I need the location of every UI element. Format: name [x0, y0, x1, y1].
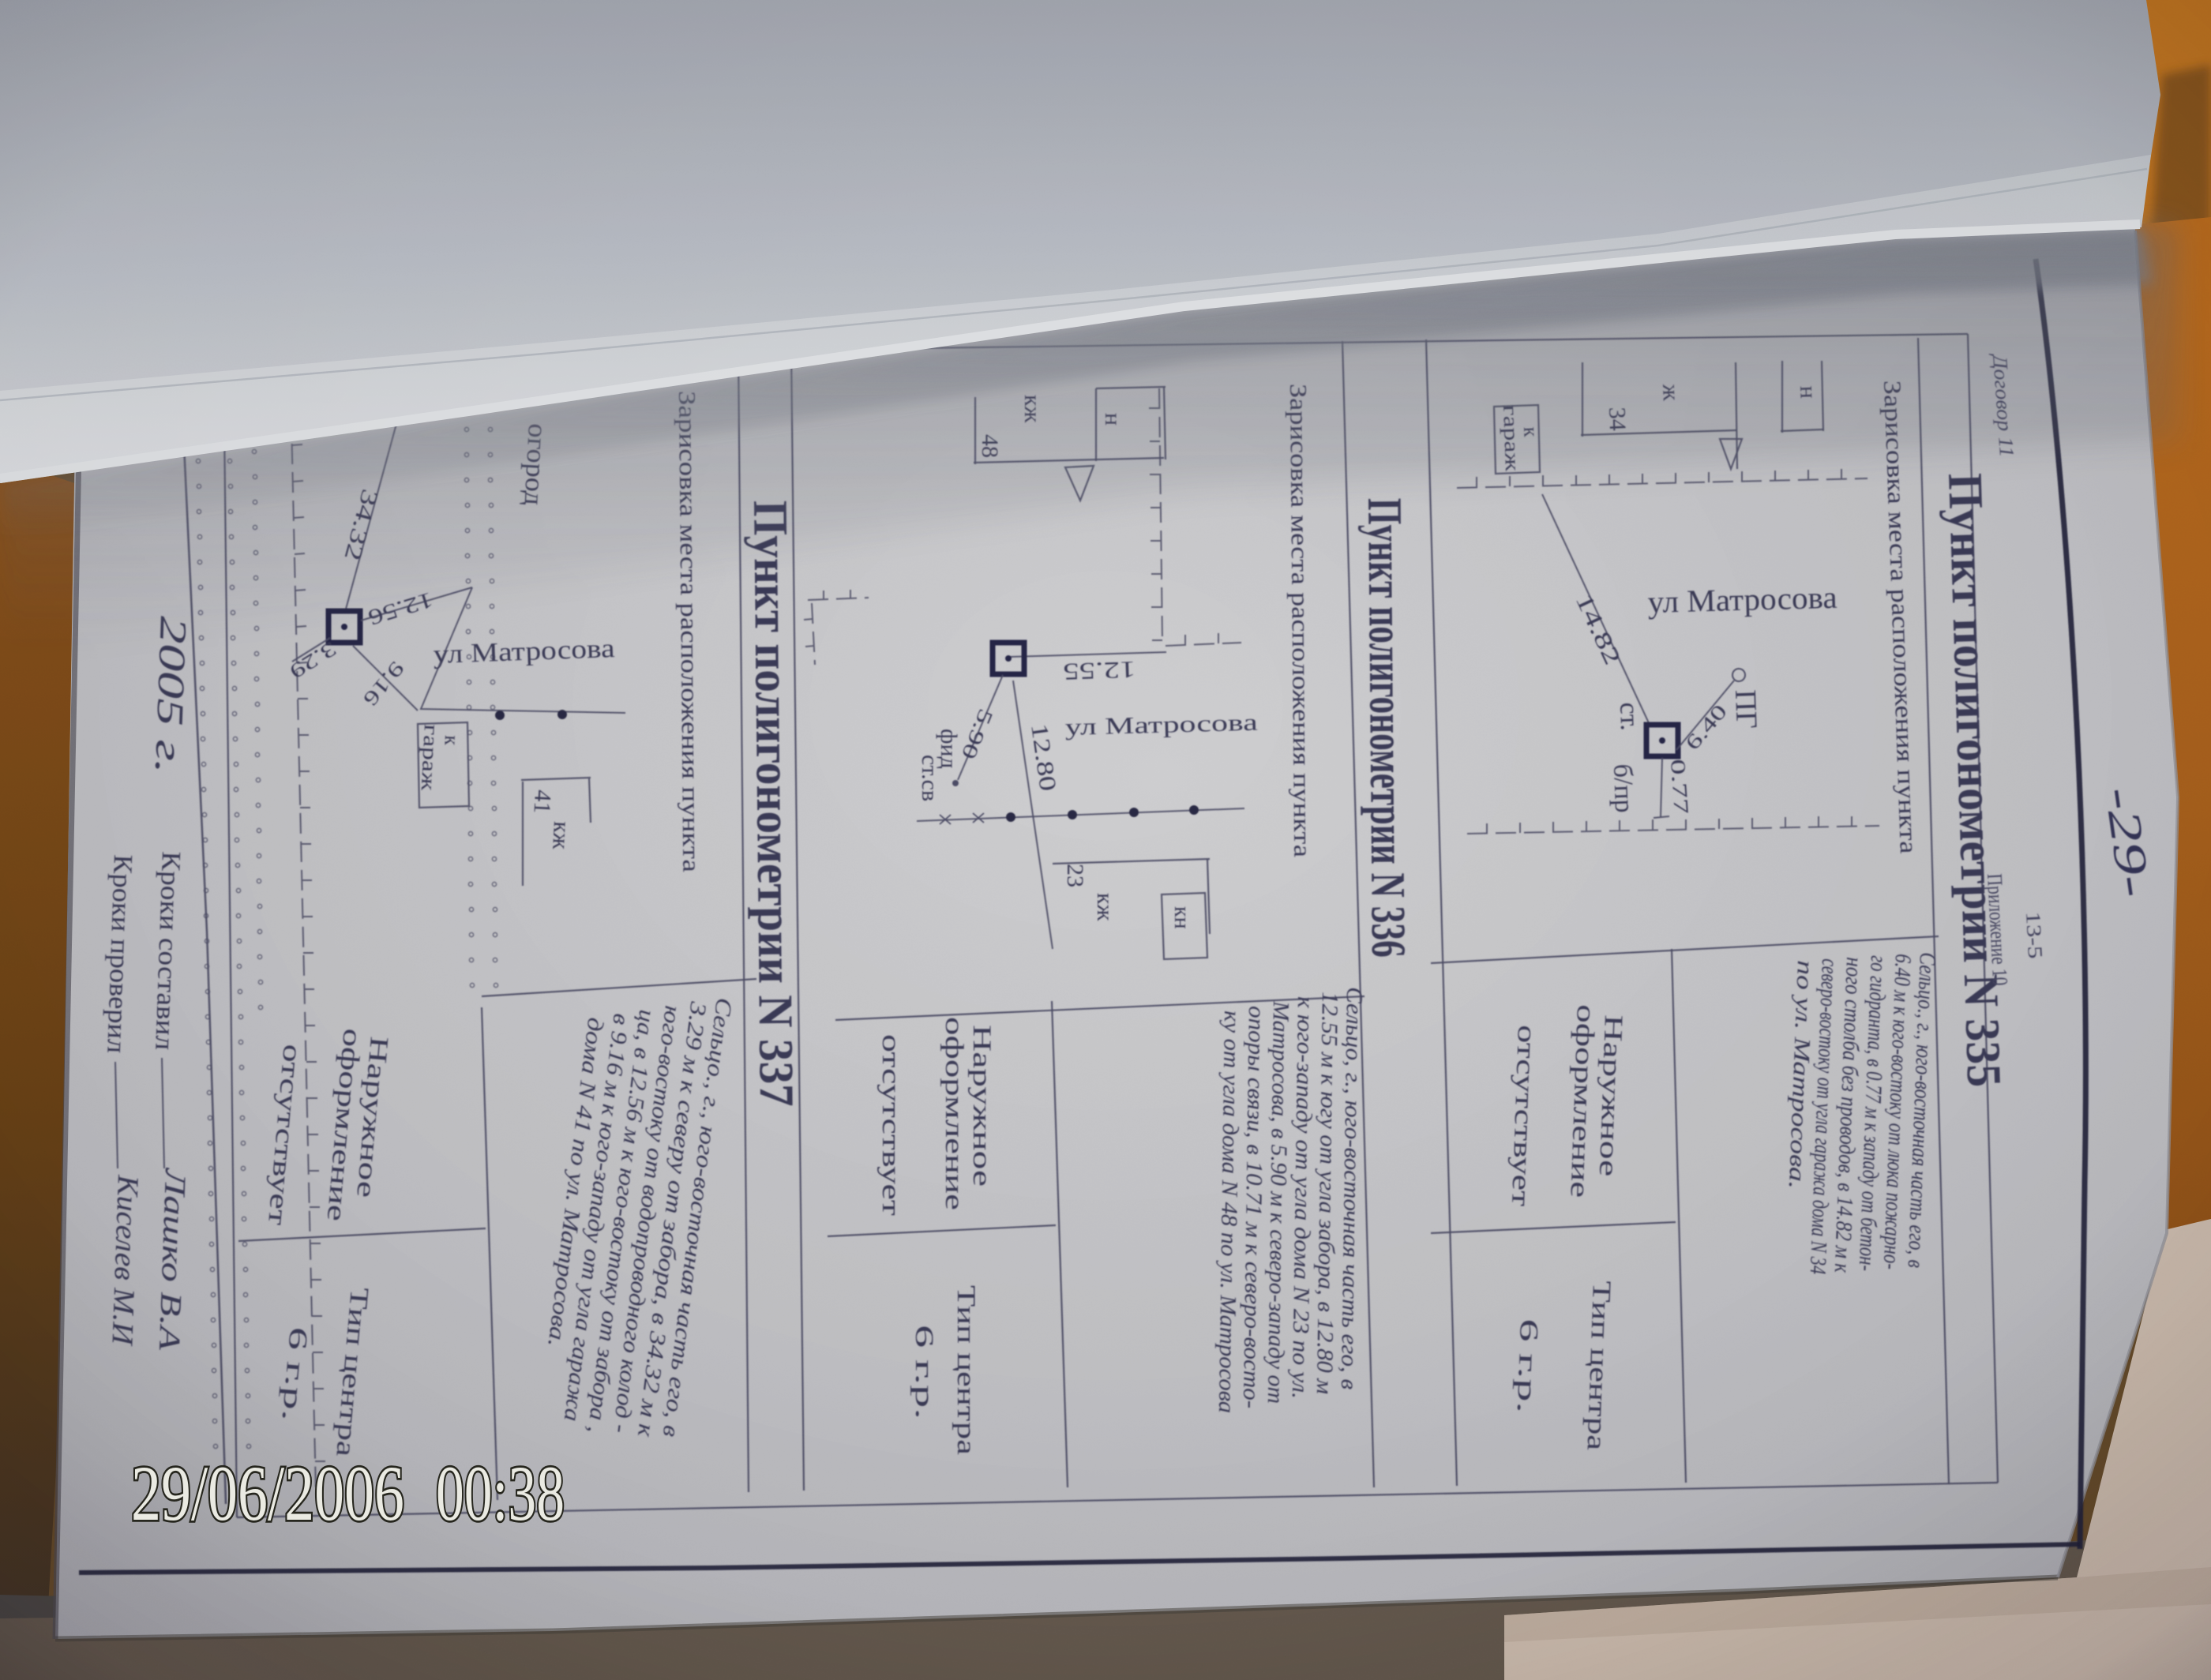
svg-text:29/06/2006: 29/06/2006 — [131, 1449, 404, 1537]
svg-text:00:38: 00:38 — [436, 1449, 565, 1537]
